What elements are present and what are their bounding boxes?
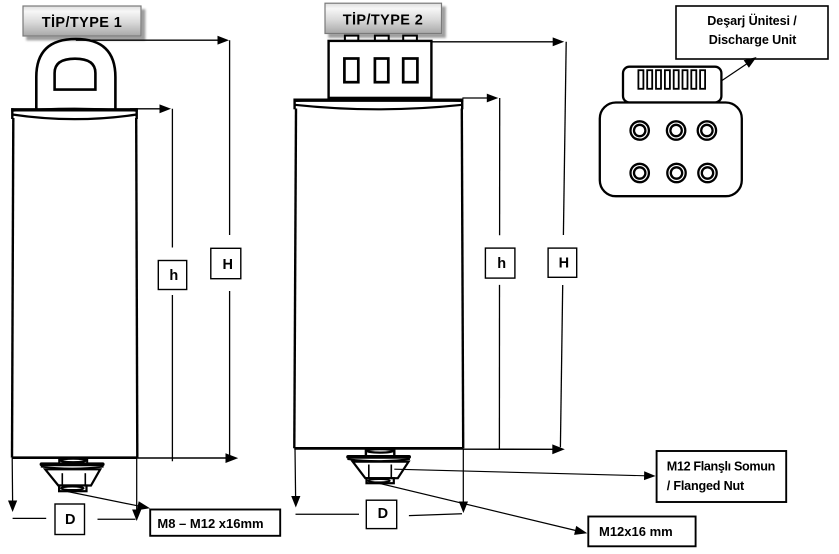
svg-text:TİP/TYPE 2: TİP/TYPE 2 bbox=[343, 11, 424, 28]
svg-text:h: h bbox=[169, 268, 178, 284]
svg-text:/ Flanged Nut: / Flanged Nut bbox=[667, 479, 745, 493]
svg-text:M8 – M12 x16mm: M8 – M12 x16mm bbox=[157, 516, 263, 531]
svg-text:D: D bbox=[378, 506, 388, 522]
svg-text:D: D bbox=[65, 512, 75, 528]
svg-text:Discharge Unit: Discharge Unit bbox=[709, 33, 797, 47]
svg-text:Deşarj Ünitesi /: Deşarj Ünitesi / bbox=[707, 13, 797, 28]
svg-text:h: h bbox=[497, 256, 506, 272]
svg-text:H: H bbox=[559, 256, 569, 272]
svg-text:M12x16 mm: M12x16 mm bbox=[599, 524, 673, 539]
svg-text:TİP/TYPE 1: TİP/TYPE 1 bbox=[42, 14, 123, 31]
svg-text:M12 Flanşlı Somun: M12 Flanşlı Somun bbox=[667, 460, 775, 474]
svg-text:H: H bbox=[223, 257, 233, 273]
